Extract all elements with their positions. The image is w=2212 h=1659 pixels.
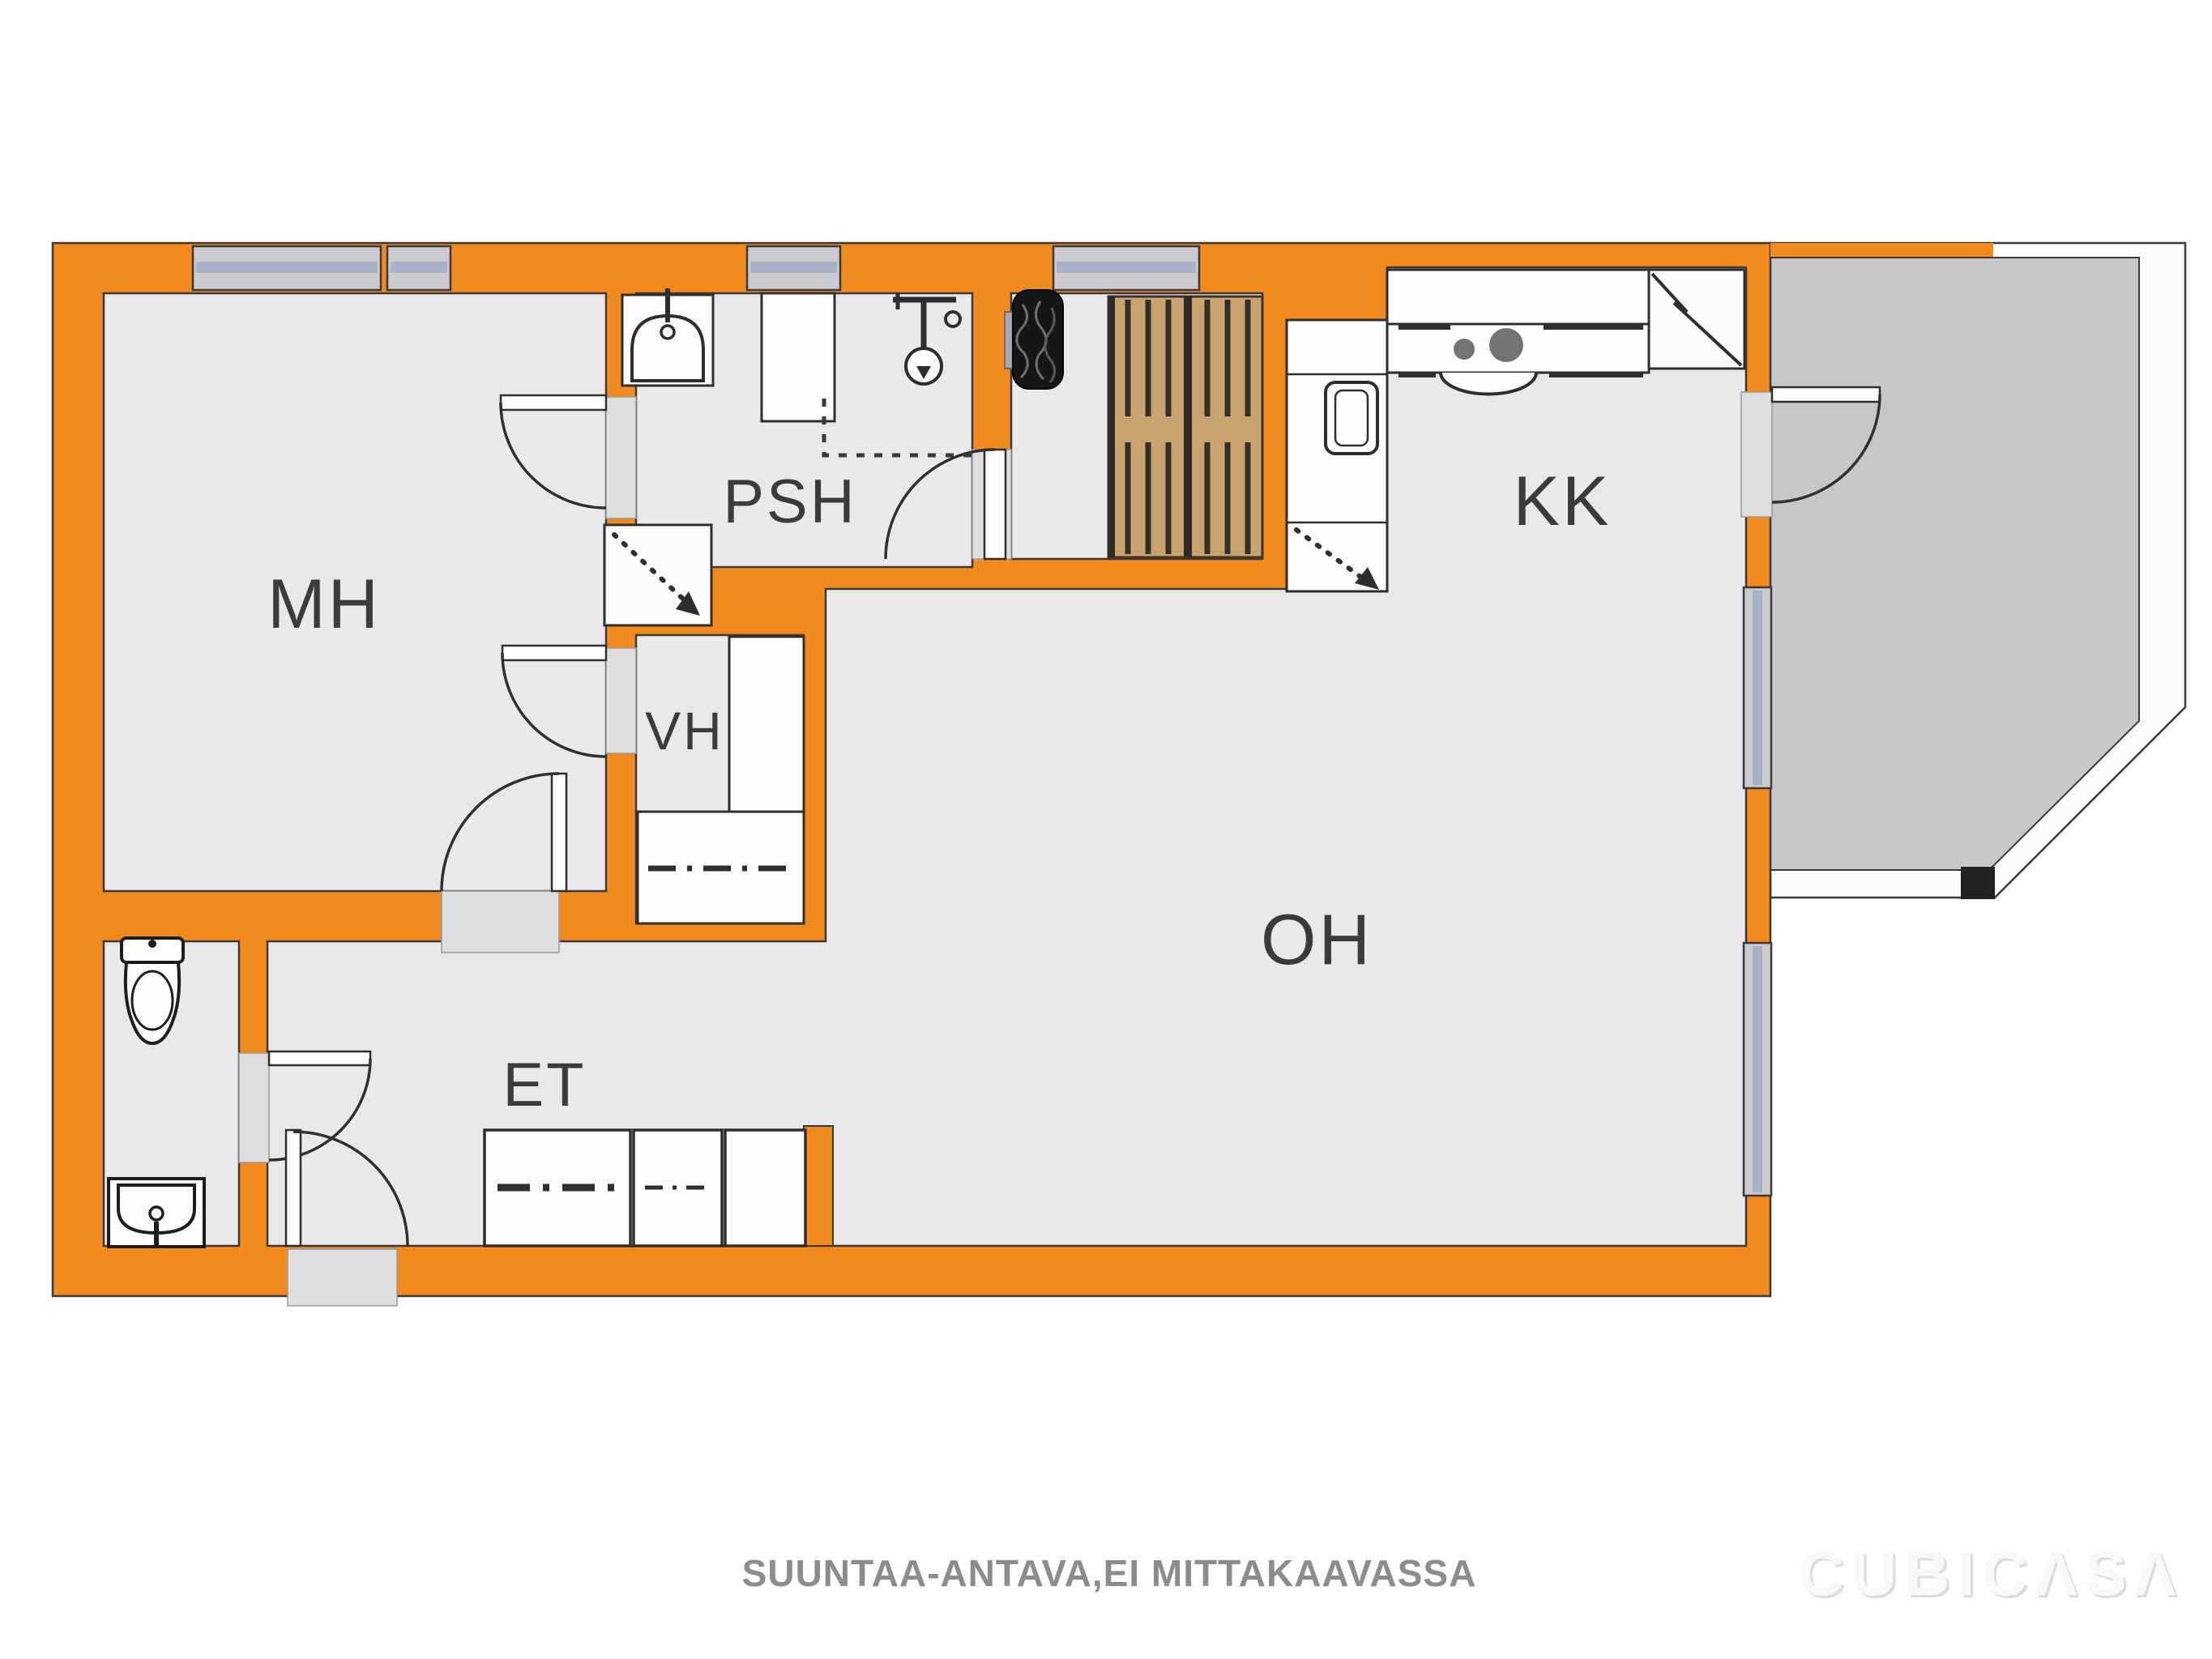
window-mh-2 (387, 246, 451, 290)
sink-icon (622, 288, 713, 386)
stove-burner-large-icon (1489, 328, 1523, 362)
cubicasa-logo: CUBICΛSΛ (1798, 1537, 2183, 1609)
room-label-psh: PSH (723, 467, 856, 536)
shower-niche (604, 525, 711, 625)
et-wardrobe-3 (725, 1130, 805, 1246)
window-psh (747, 246, 840, 290)
wall-stub-et-oh (804, 1126, 833, 1246)
window-oh-2 (1744, 943, 1771, 1196)
floorplan-canvas: MH PSH VH KK OH ET SUUNTAA-ANTAVA,EI MIT… (0, 0, 2212, 1659)
kitchen-tall-cabinet (1287, 320, 1387, 591)
window-mh-1 (193, 246, 381, 290)
window-sauna (1053, 246, 1199, 290)
window-oh-1 (1744, 587, 1771, 788)
sauna-bench (1108, 296, 1262, 557)
disclaimer-text: SUUNTAA-ANTAVA,EI MITTAKAAVASSA (742, 1552, 1477, 1594)
vh-cabinet (729, 637, 804, 812)
room-label-mh: MH (267, 565, 381, 643)
wc-sink-icon (109, 1179, 204, 1247)
room-label-oh: OH (1261, 899, 1373, 979)
balcony-top-wall (1770, 243, 1993, 258)
sauna-stove-icon (1005, 290, 1063, 389)
et-wardrobes (485, 1130, 805, 1246)
room-label-kk: KK (1514, 463, 1612, 540)
balcony-corner-post (1961, 867, 1995, 899)
stove-burners-icon (1454, 339, 1475, 360)
room-label-et: ET (502, 1051, 586, 1120)
room-label-vh: VH (645, 701, 724, 761)
